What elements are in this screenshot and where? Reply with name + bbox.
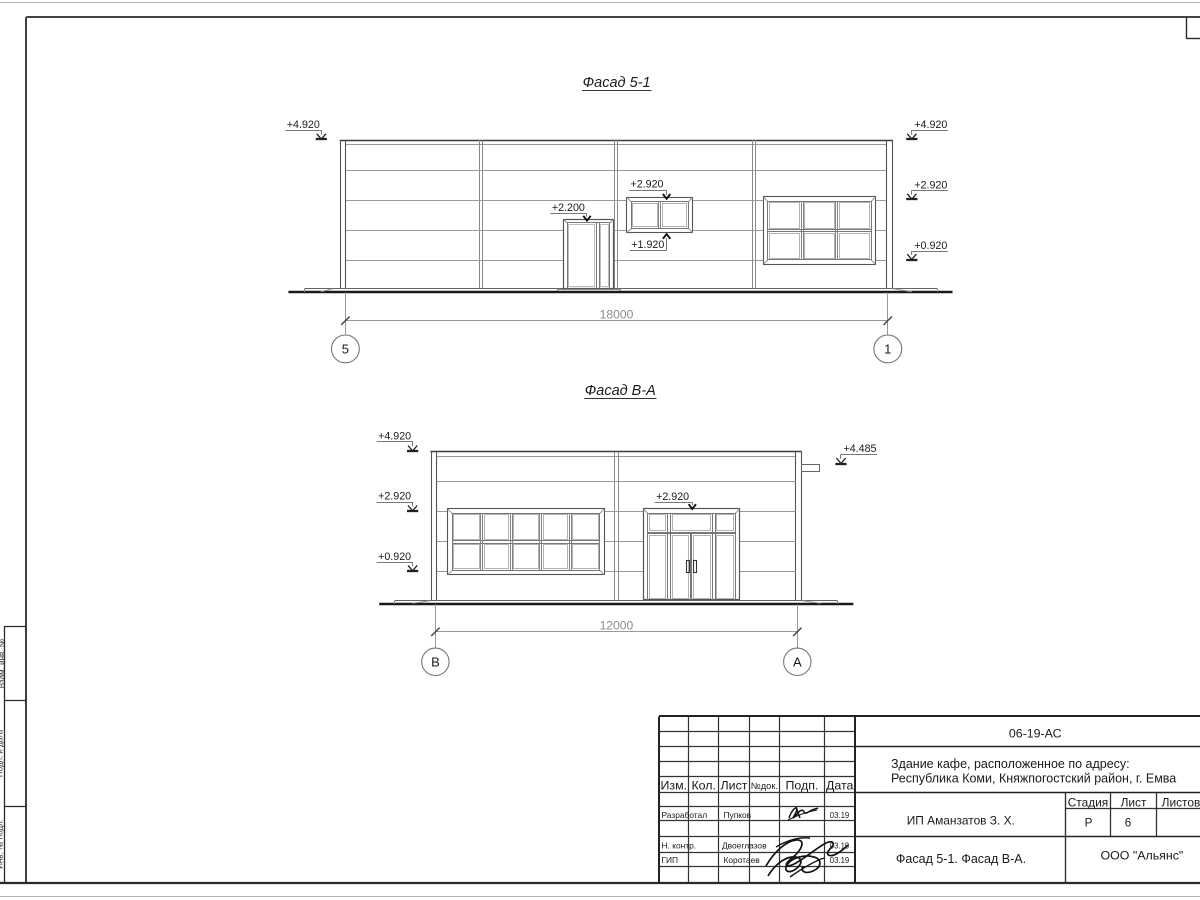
svg-text:+4.920: +4.920 — [287, 119, 320, 131]
svg-text:Фасад 5-1. Фасад В-А.: Фасад 5-1. Фасад В-А. — [896, 852, 1026, 866]
svg-text:+2.920: +2.920 — [631, 179, 664, 191]
svg-text:Фасад 5-1: Фасад 5-1 — [583, 75, 651, 91]
svg-text:Лист: Лист — [1121, 796, 1147, 810]
svg-text:В: В — [431, 654, 440, 669]
svg-text:№док.: №док. — [751, 781, 778, 791]
svg-text:Лист: Лист — [721, 779, 748, 793]
svg-text:Двоеглазов: Двоеглазов — [722, 840, 767, 850]
svg-text:18000: 18000 — [600, 307, 634, 321]
svg-text:+4.920: +4.920 — [378, 430, 411, 442]
svg-text:Изм.: Изм. — [661, 779, 688, 793]
svg-text:Листов: Листов — [1162, 796, 1200, 810]
svg-text:+0.920: +0.920 — [914, 240, 947, 252]
svg-text:Взам. инв. №: Взам. инв. № — [0, 638, 6, 688]
svg-text:+2.200: +2.200 — [552, 202, 585, 214]
svg-text:03.19: 03.19 — [830, 856, 850, 865]
svg-text:Н. контр.: Н. контр. — [662, 840, 697, 850]
svg-text:+2.920: +2.920 — [914, 179, 947, 191]
svg-text:6: 6 — [1125, 817, 1132, 830]
svg-text:Коротаев: Коротаев — [724, 855, 761, 865]
svg-text:+0.920: +0.920 — [378, 551, 411, 563]
svg-text:Подп. и дата: Подп. и дата — [0, 729, 5, 777]
svg-text:12000: 12000 — [600, 619, 634, 633]
svg-text:Фасад В-А: Фасад В-А — [585, 383, 656, 399]
svg-text:Кол.: Кол. — [691, 779, 716, 793]
svg-text:03.19: 03.19 — [830, 811, 850, 820]
svg-text:Здание кафе, расположенное по: Здание кафе, расположенное по адресу: — [891, 757, 1130, 771]
svg-text:+1.920: +1.920 — [631, 239, 664, 251]
svg-text:Разработал: Разработал — [662, 810, 708, 820]
svg-text:+2.920: +2.920 — [378, 491, 411, 503]
svg-text:Дата: Дата — [826, 779, 854, 793]
svg-text:5: 5 — [342, 342, 349, 357]
svg-text:ГИП: ГИП — [662, 855, 679, 865]
svg-text:+4.485: +4.485 — [844, 443, 877, 455]
svg-text:Инв. № подл.: Инв. № подл. — [0, 819, 5, 869]
svg-text:Р: Р — [1085, 816, 1093, 829]
svg-text:Подп.: Подп. — [786, 779, 819, 793]
svg-text:1: 1 — [884, 342, 891, 357]
svg-text:Республика Коми, Княжпогостски: Республика Коми, Княжпогостский район, г… — [891, 772, 1176, 786]
svg-text:+2.920: +2.920 — [656, 491, 689, 503]
svg-text:Пупков: Пупков — [724, 810, 752, 820]
svg-text:+4.920: +4.920 — [914, 119, 947, 131]
svg-text:ИП Аманзатов З. Х.: ИП Аманзатов З. Х. — [907, 813, 1015, 827]
svg-text:А: А — [793, 654, 802, 669]
svg-text:Стадия: Стадия — [1068, 796, 1109, 810]
svg-text:06-19-АС: 06-19-АС — [1009, 726, 1062, 740]
svg-text:ООО "Альянс": ООО "Альянс" — [1100, 848, 1183, 862]
